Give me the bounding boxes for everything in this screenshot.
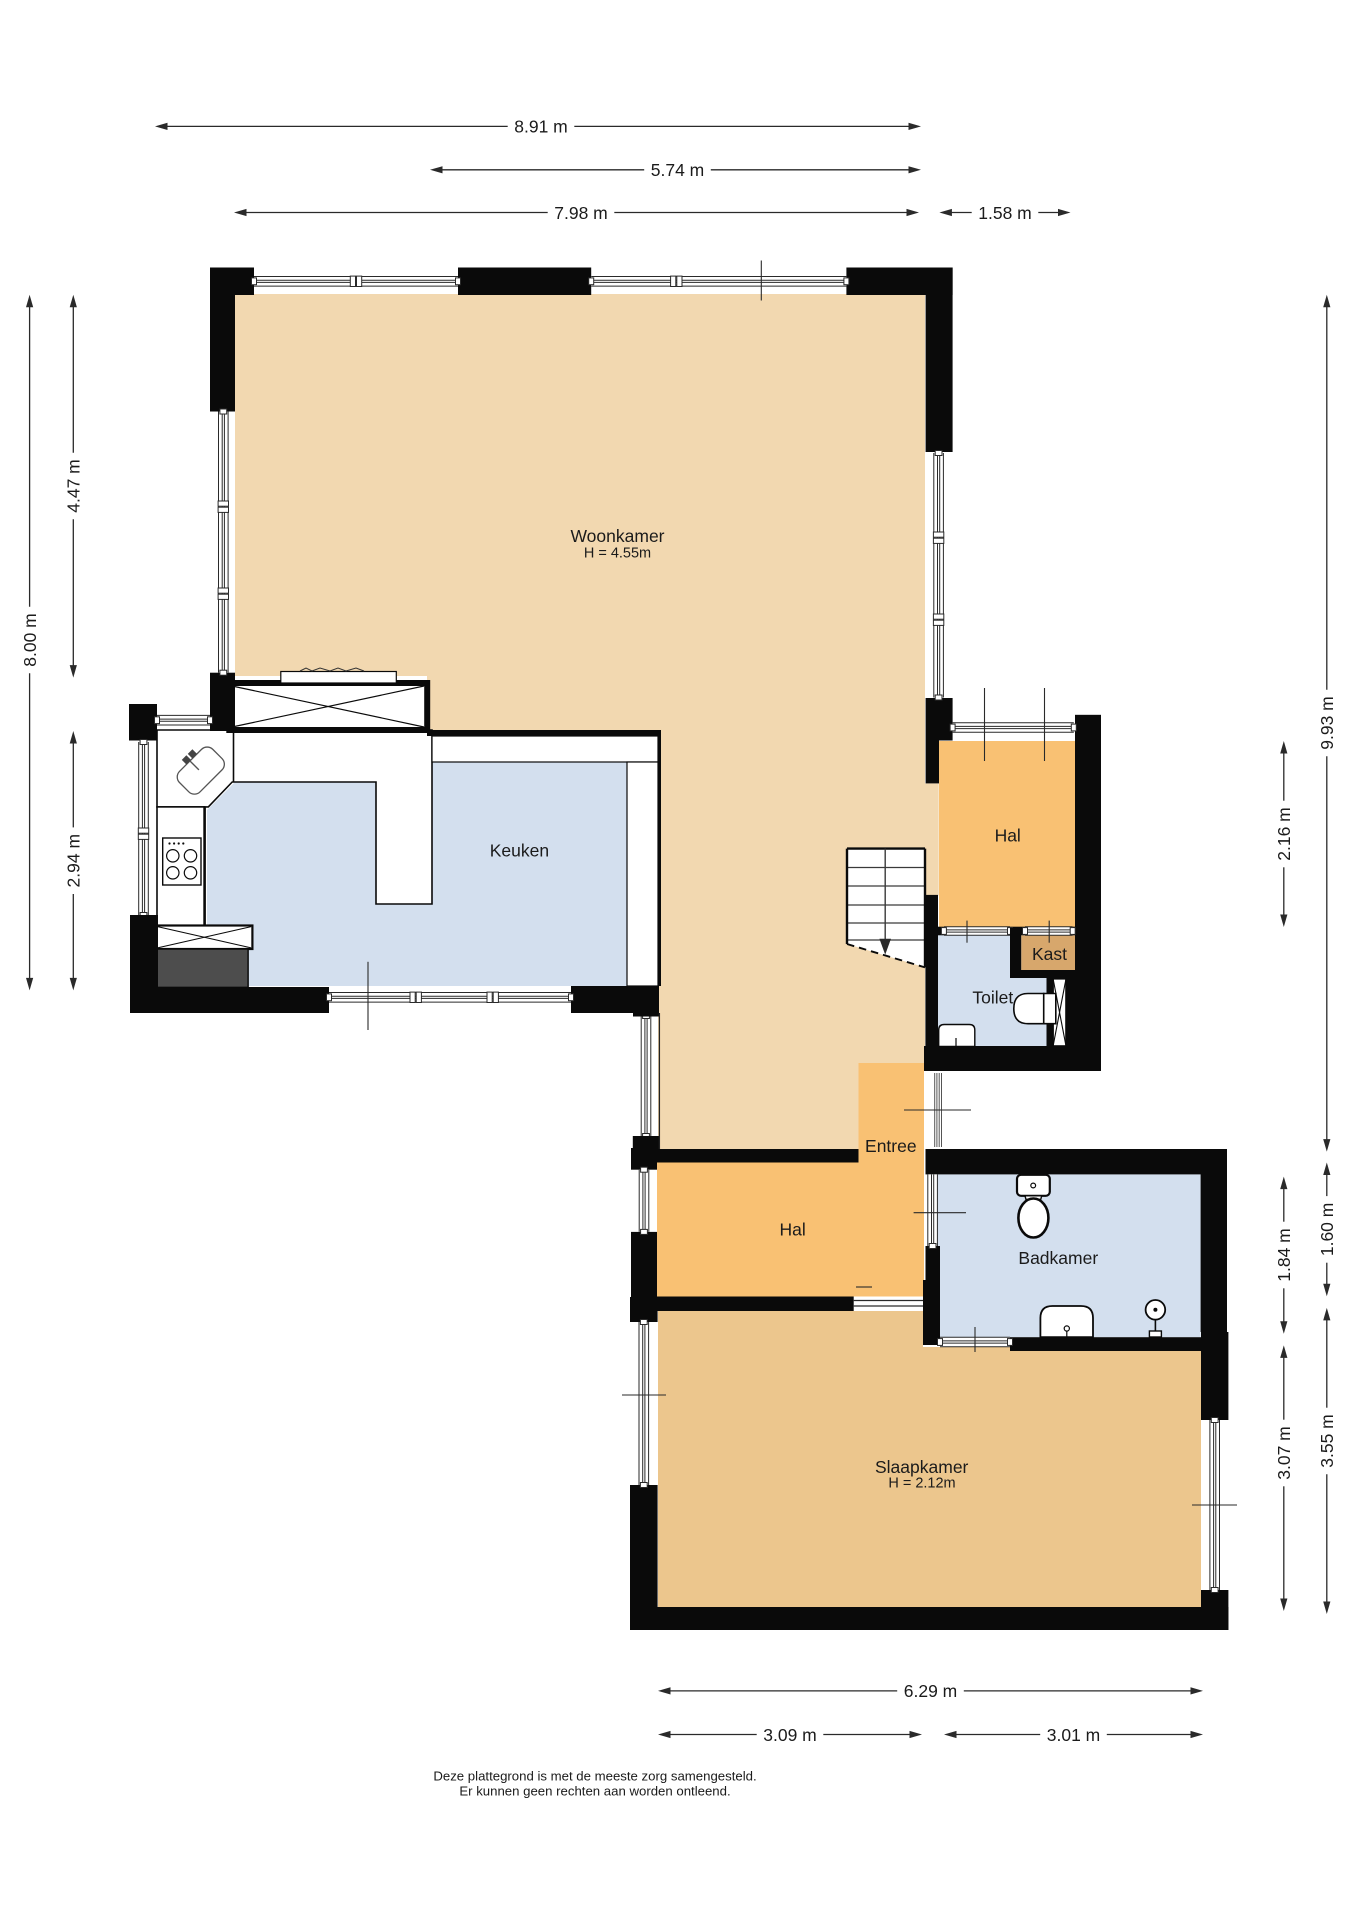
svg-text:3.01 m: 3.01 m — [1047, 1725, 1101, 1745]
svg-text:Slaapkamer: Slaapkamer — [875, 1457, 969, 1477]
svg-text:9.93 m: 9.93 m — [1317, 696, 1337, 750]
svg-text:2.16 m: 2.16 m — [1274, 807, 1294, 861]
svg-text:H = 4.55m: H = 4.55m — [584, 545, 651, 561]
svg-text:3.55 m: 3.55 m — [1317, 1414, 1337, 1468]
svg-text:8.91 m: 8.91 m — [514, 117, 568, 137]
svg-text:1.60 m: 1.60 m — [1317, 1203, 1337, 1257]
svg-text:3.09 m: 3.09 m — [763, 1725, 817, 1745]
svg-text:Deze plattegrond is met de mee: Deze plattegrond is met de meeste zorg s… — [433, 1769, 756, 1784]
svg-text:Hal: Hal — [995, 826, 1021, 846]
svg-text:Hal: Hal — [779, 1220, 805, 1240]
svg-text:1.84 m: 1.84 m — [1274, 1228, 1294, 1282]
svg-text:Badkamer: Badkamer — [1018, 1248, 1098, 1268]
svg-text:4.47 m: 4.47 m — [64, 459, 84, 513]
svg-text:Kast: Kast — [1032, 944, 1067, 964]
svg-text:H = 2.12m: H = 2.12m — [888, 1476, 955, 1492]
svg-text:8.00 m: 8.00 m — [20, 613, 40, 667]
svg-text:5.74 m: 5.74 m — [651, 160, 705, 180]
svg-text:3.07 m: 3.07 m — [1274, 1426, 1294, 1480]
svg-text:6.29 m: 6.29 m — [904, 1681, 958, 1701]
svg-text:Woonkamer: Woonkamer — [570, 526, 664, 546]
svg-text:2.94 m: 2.94 m — [64, 834, 84, 888]
svg-text:Entree: Entree — [865, 1136, 917, 1156]
svg-text:Er kunnen geen rechten aan wor: Er kunnen geen rechten aan worden ontlee… — [459, 1783, 730, 1798]
svg-text:Toilet: Toilet — [972, 988, 1013, 1008]
svg-text:1.58 m: 1.58 m — [978, 203, 1032, 223]
svg-text:7.98 m: 7.98 m — [554, 203, 608, 223]
svg-text:Keuken: Keuken — [490, 841, 549, 861]
